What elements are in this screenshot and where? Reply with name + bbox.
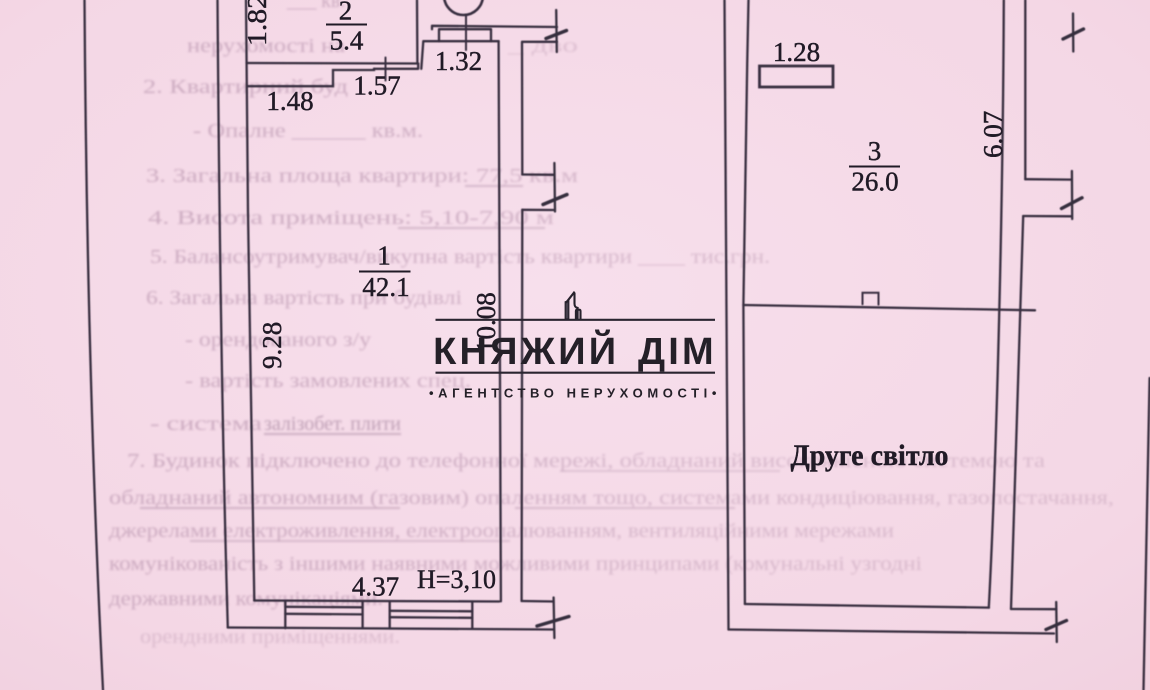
svg-text:2: 2 xyxy=(339,0,353,26)
svg-text:_ дво: _ дво xyxy=(506,35,578,57)
svg-text:обладнаний автономним (газовим: обладнаний автономним (газовим) опалення… xyxy=(109,487,1114,509)
svg-text:___ кв.: ___ кв. xyxy=(286,0,345,12)
svg-text:4.37: 4.37 xyxy=(352,572,399,602)
svg-text:1.57: 1.57 xyxy=(353,71,400,101)
svg-text:комунікованість з іншими наявн: комунікованість з іншими наявними можлив… xyxy=(109,553,923,575)
svg-text:- система: - система xyxy=(150,413,262,435)
svg-text:1: 1 xyxy=(377,241,391,271)
svg-text:1.32: 1.32 xyxy=(435,46,482,76)
svg-text:5.4: 5.4 xyxy=(330,26,364,56)
svg-text:4. Висота приміщень: 5,10-7,9: 4. Висота приміщень: 5,10-7,90 м xyxy=(148,207,554,229)
svg-text:Н=3,10: Н=3,10 xyxy=(417,565,496,594)
svg-text:•АГЕНТСТВО НЕРУХОМОСТІ•: •АГЕНТСТВО НЕРУХОМОСТІ• xyxy=(429,386,721,401)
svg-text:9.28: 9.28 xyxy=(257,322,287,369)
svg-text:- Опалне ______ кв.м.: - Опалне ______ кв.м. xyxy=(193,120,423,142)
svg-text:3: 3 xyxy=(868,136,882,166)
svg-text:залізобет. плити: залізобет. плити xyxy=(264,413,401,435)
svg-text:КНЯЖИЙ ДІМ: КНЯЖИЙ ДІМ xyxy=(433,328,717,373)
svg-text:1.28: 1.28 xyxy=(773,37,820,67)
svg-text:1.82: 1.82 xyxy=(242,0,272,46)
svg-text:42.1: 42.1 xyxy=(362,272,409,302)
svg-text:5. Балансоутримувач/викупна ва: 5. Балансоутримувач/викупна вартість ква… xyxy=(150,246,770,268)
svg-text:6.07: 6.07 xyxy=(978,111,1008,158)
svg-text:1.48: 1.48 xyxy=(266,86,313,116)
svg-text:26.0: 26.0 xyxy=(851,167,898,197)
svg-text:Друге світло: Друге світло xyxy=(791,439,949,472)
svg-text:6. Загальна вартість при будів: 6. Загальна вартість при будівлі xyxy=(146,287,463,309)
svg-text:3. Загальна площа квартири: 77: 3. Загальна площа квартири: 77,5 кв.м xyxy=(146,165,578,187)
